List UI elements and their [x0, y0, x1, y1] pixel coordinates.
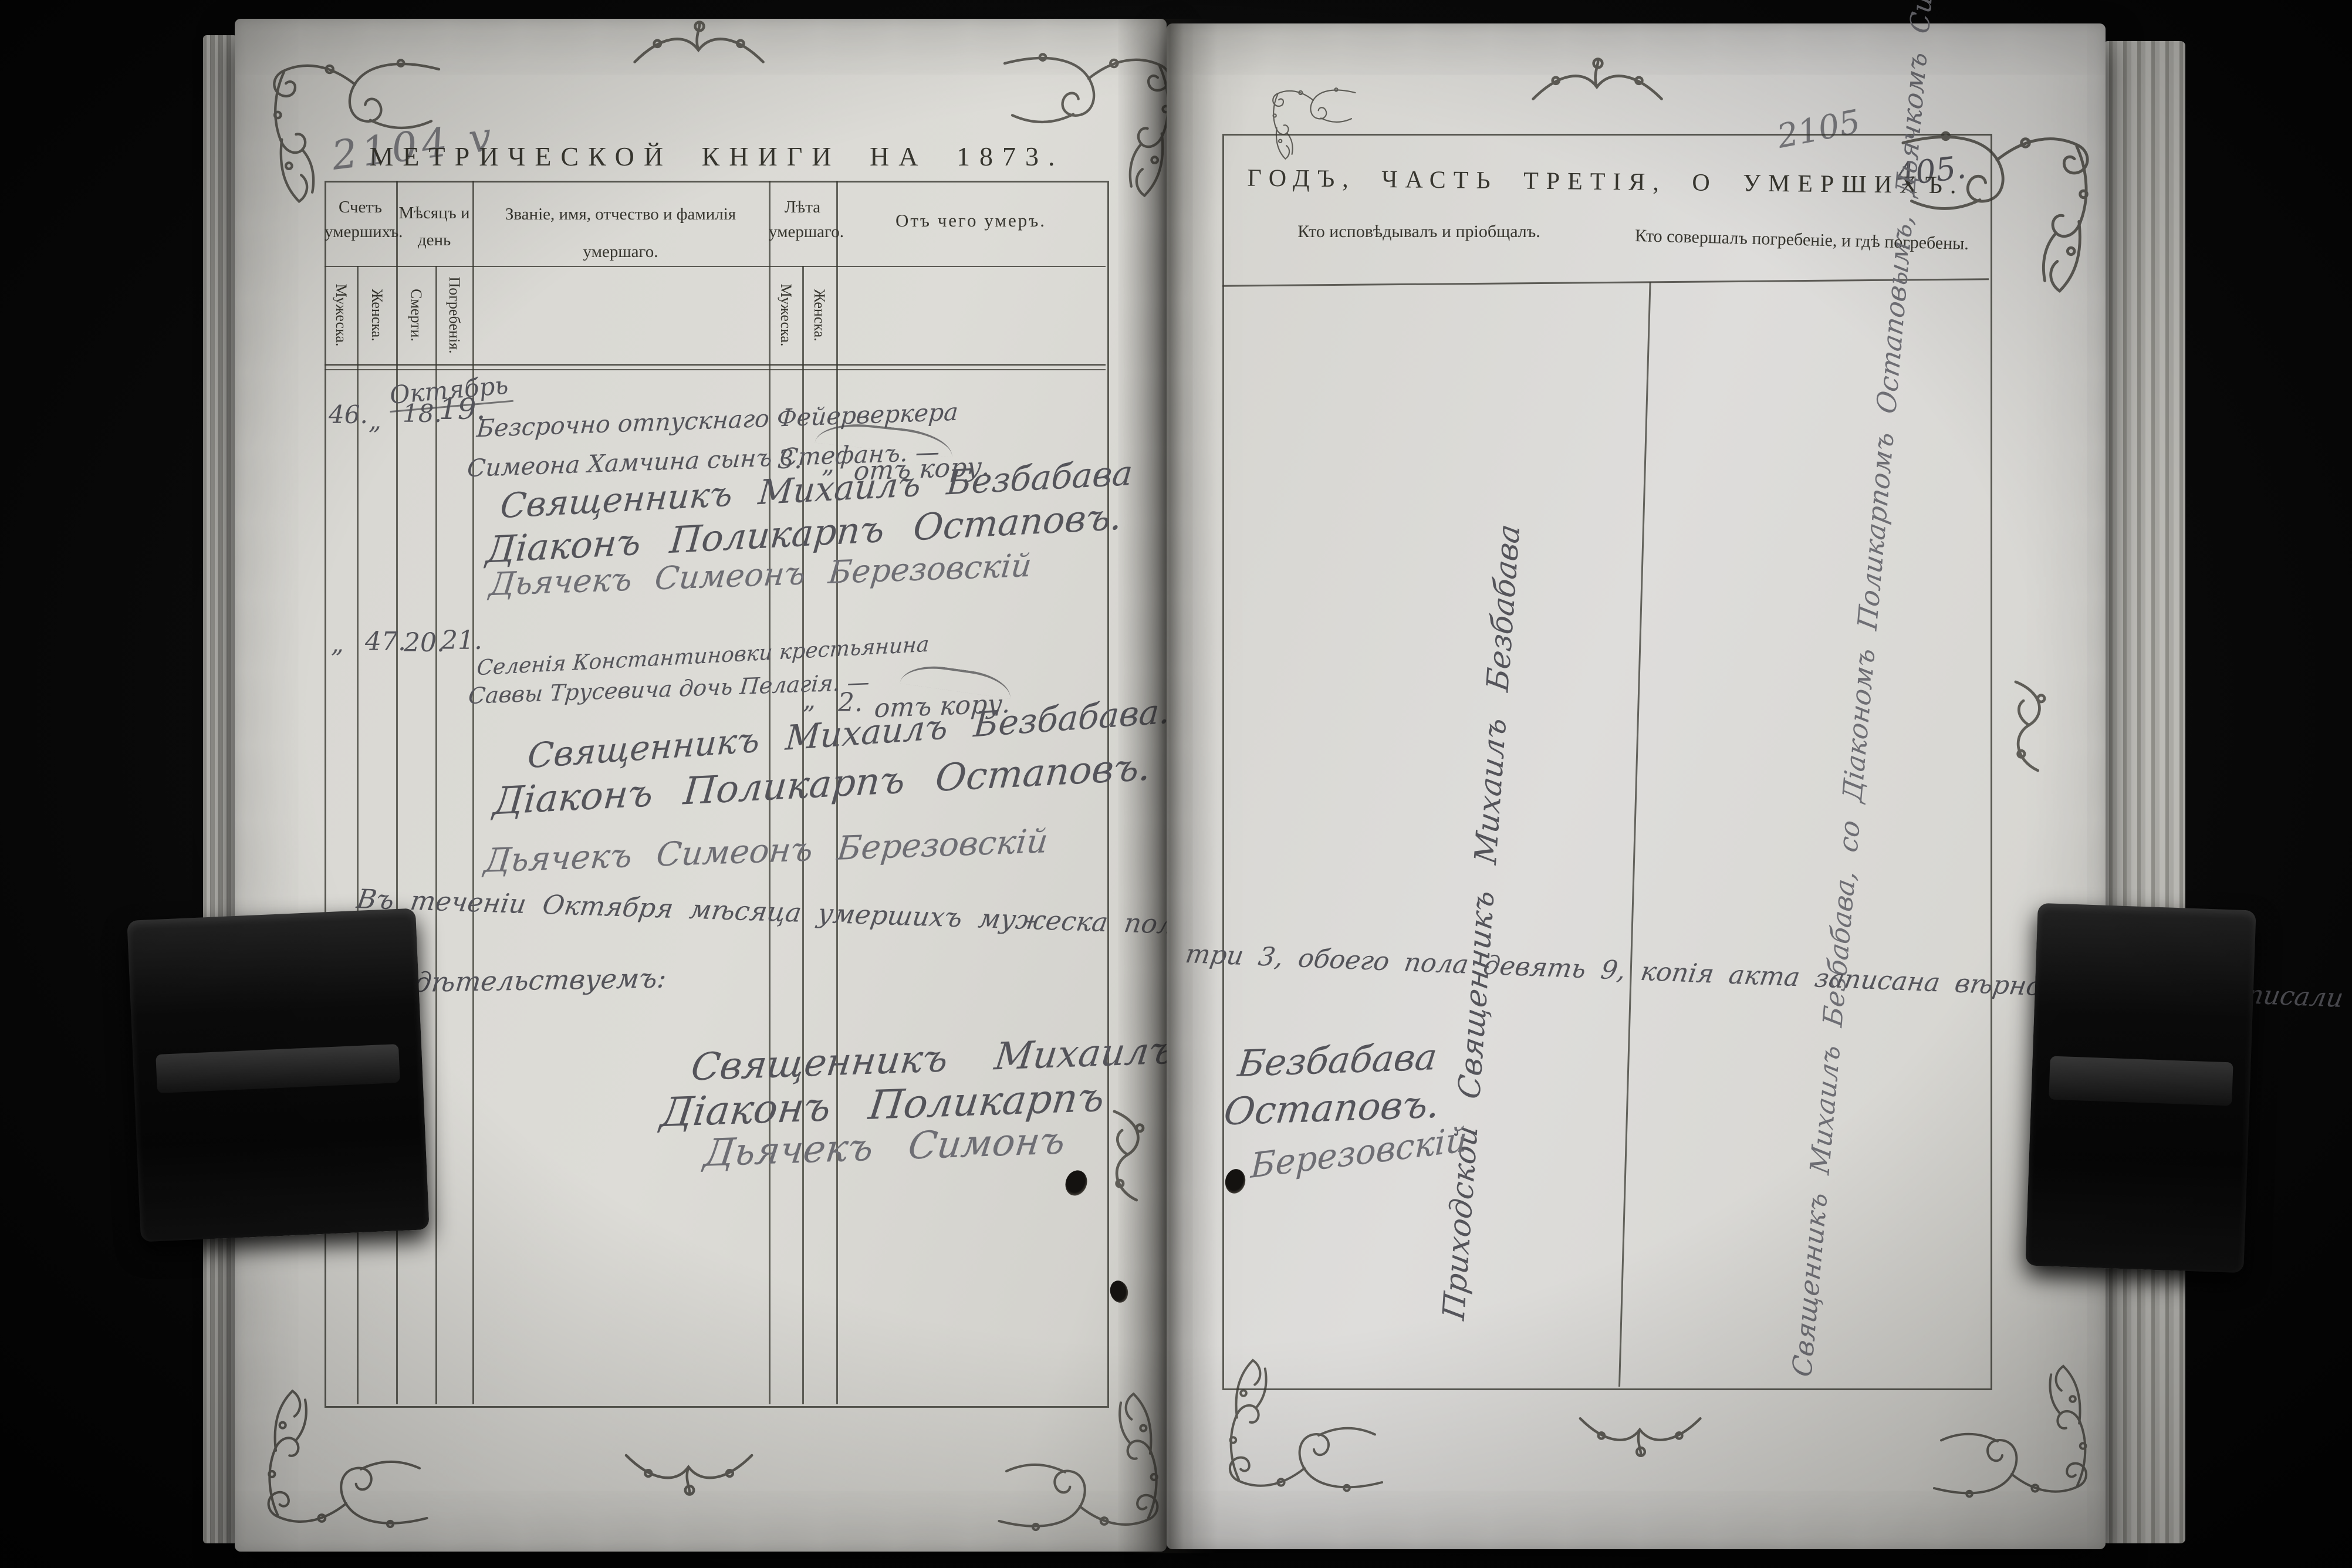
col-header-cause: Отъ чего умеръ.	[836, 210, 1106, 231]
corner-flourish-ornament	[258, 1386, 434, 1533]
entry47-age-male: „	[803, 685, 816, 714]
entry47-count-female: 47.	[365, 627, 406, 657]
right-table-frame	[1222, 134, 1992, 1390]
bottom-center-ornament	[1573, 1408, 1708, 1459]
subcol-death: Смерти.	[407, 289, 425, 342]
page-stack-left-edge	[203, 35, 237, 1543]
right-binder-clamp	[2025, 903, 2256, 1273]
col-header-count: Счетъ умершихъ.	[325, 195, 396, 244]
entry47-death-day: 20.	[404, 628, 445, 658]
entry46-count-male: 46.	[329, 400, 368, 429]
closing-signature-priest-right: Безбабава	[1236, 1035, 1440, 1085]
page-stack-right-edge	[2103, 41, 2185, 1543]
col-header-month: Мѣсяцъ и день	[396, 200, 472, 254]
top-center-ornament	[629, 19, 770, 73]
left-page: 2104 v МЕТРИЧЕСКОЙ КНИГИ НА 1873. Счетъ …	[235, 19, 1167, 1552]
subcol-age-male: Мужеска.	[777, 284, 795, 347]
bottom-center-ornament	[619, 1445, 760, 1498]
entry47-burial-day: 21.	[441, 626, 482, 655]
photo-of-metrical-book: 2104 v МЕТРИЧЕСКОЙ КНИГИ НА 1873. Счетъ …	[0, 0, 2352, 1568]
subcol-age-female: Женска.	[810, 289, 828, 341]
entry46-death-day: 18.	[403, 399, 442, 428]
clamp-hinge	[156, 1044, 400, 1093]
right-edge-ornament	[2005, 675, 2054, 778]
book-gutter-shadow	[1118, 19, 1218, 1553]
subcol-burial: Погребенія.	[445, 276, 463, 353]
col-header-confessor: Кто исповѣдывалъ и пріобщалъ.	[1231, 222, 1607, 242]
col-header-name: Званіе, имя, отчество и фамилія умершаго…	[478, 196, 763, 271]
clamp-hinge	[2049, 1056, 2233, 1106]
entry47-count-male: „	[331, 629, 344, 658]
subcol-count-male: Мужеска.	[332, 284, 350, 347]
col-header-age: Лѣта умершаго.	[769, 195, 836, 244]
right-page: 2105 405. ГОДЪ, ЧАСТЬ ТРЕТІЯ, О УМЕРШИХЪ…	[1167, 23, 2106, 1549]
subcol-count-female: Женска.	[368, 289, 386, 341]
left-page-title: МЕТРИЧЕСКОЙ КНИГИ НА 1873.	[325, 141, 1109, 172]
entry46-count-female: „	[369, 406, 381, 435]
top-center-ornament	[1528, 56, 1668, 110]
left-binder-clamp	[127, 908, 429, 1242]
